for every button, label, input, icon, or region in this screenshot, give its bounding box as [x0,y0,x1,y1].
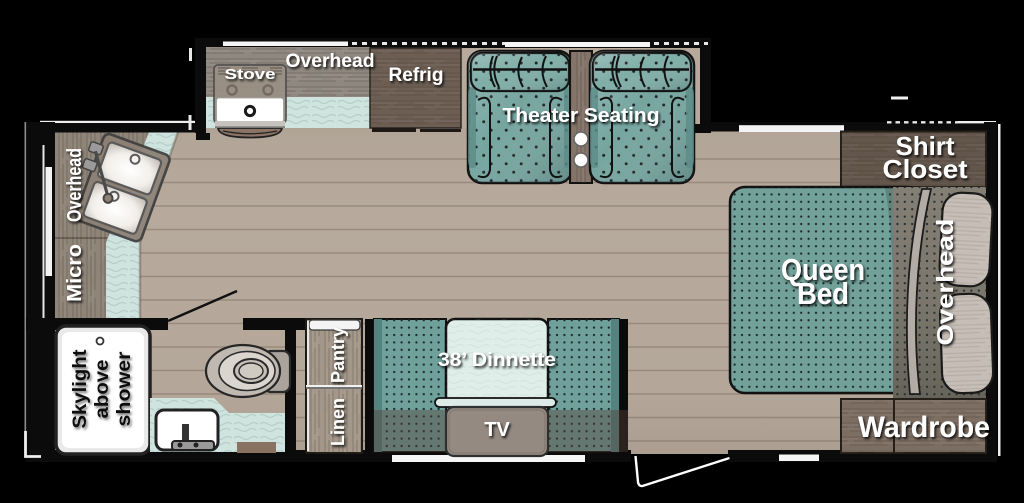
svg-text:Overhead: Overhead [64,148,86,222]
svg-text:above: above [92,360,113,419]
svg-text:Overhead: Overhead [932,219,958,346]
svg-text:Pantry: Pantry [328,327,348,383]
svg-text:Linen: Linen [328,398,348,446]
svg-text:Theater Seating: Theater Seating [503,105,660,127]
svg-text:Stove: Stove [225,66,276,83]
svg-text:Overhead: Overhead [286,51,375,72]
svg-text:Wardrobe: Wardrobe [858,411,990,444]
svg-text:Bed: Bed [797,276,849,311]
svg-text:Skylight: Skylight [70,349,91,429]
svg-text:Closet: Closet [883,154,968,184]
svg-text:TV: TV [484,419,510,441]
svg-text:shower: shower [114,351,135,427]
svg-text:38’ Dinnette: 38’ Dinnette [438,350,556,371]
svg-text:Refrig: Refrig [389,65,444,86]
svg-text:Micro: Micro [64,244,86,302]
